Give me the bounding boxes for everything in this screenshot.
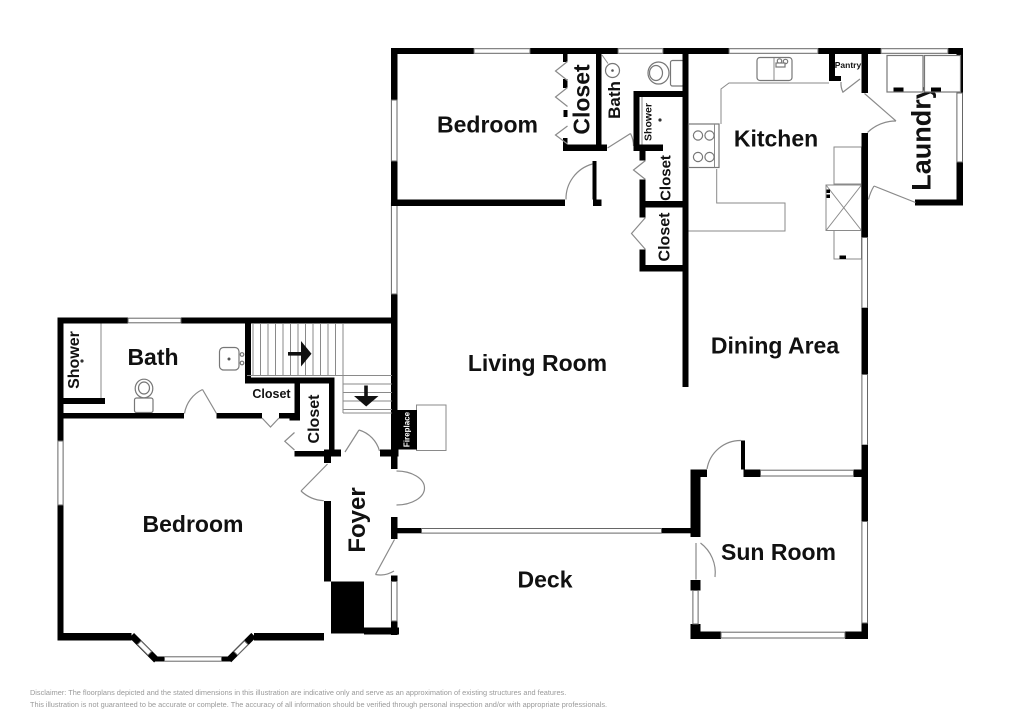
svg-text:Living Room: Living Room (468, 350, 607, 376)
svg-text:Closet: Closet (306, 394, 323, 444)
svg-text:Laundry: Laundry (907, 84, 937, 191)
svg-text:Closet: Closet (657, 212, 674, 262)
svg-text:Kitchen: Kitchen (734, 126, 818, 152)
svg-text:Sun Room: Sun Room (721, 539, 836, 565)
svg-text:Bedroom: Bedroom (143, 511, 244, 537)
svg-text:Deck: Deck (518, 567, 573, 593)
svg-text:Bath: Bath (605, 81, 624, 119)
svg-text:Closet: Closet (569, 64, 595, 135)
svg-text:Dining Area: Dining Area (711, 333, 839, 359)
svg-text:Closet: Closet (658, 155, 675, 201)
svg-text:This illustration is not guara: This illustration is not guaranteed to b… (30, 700, 607, 709)
svg-text:Bath: Bath (127, 344, 178, 370)
svg-text:Bedroom: Bedroom (437, 112, 538, 138)
svg-text:Fireplace: Fireplace (402, 411, 411, 447)
svg-text:Pantry: Pantry (835, 60, 862, 70)
svg-text:Shower: Shower (66, 331, 83, 389)
svg-text:Foyer: Foyer (344, 487, 371, 552)
svg-text:Closet: Closet (252, 387, 291, 401)
svg-text:Shower: Shower (643, 103, 655, 141)
svg-text:Disclaimer: The floorplans dep: Disclaimer: The floorplans depicted and … (30, 688, 566, 697)
